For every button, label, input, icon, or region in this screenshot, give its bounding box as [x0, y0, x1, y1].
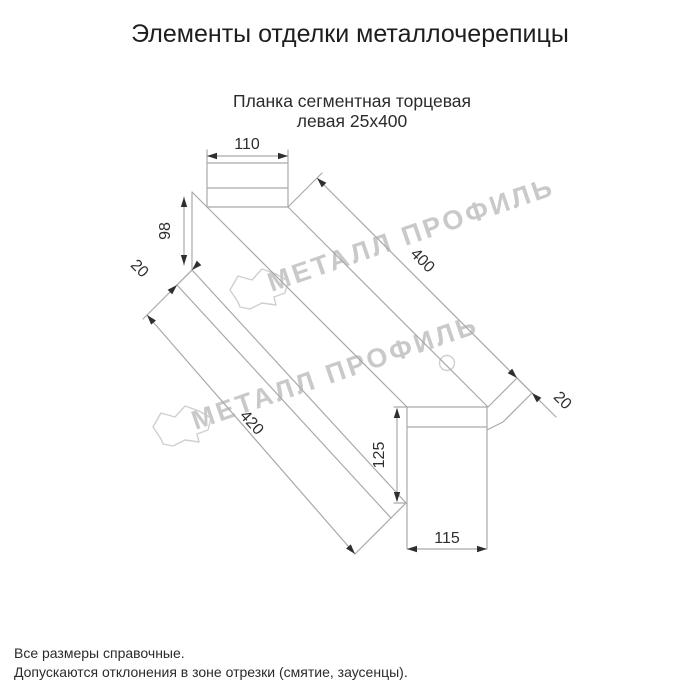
dimension-98: 98 — [157, 197, 187, 265]
part-subtitle-line1: Планка сегментная торцевая — [233, 91, 471, 111]
dim-115-label: 115 — [434, 530, 460, 547]
logo-ring-icon — [440, 356, 455, 371]
watermark-text: МЕТАЛЛ ПРОФИЛЬ — [188, 309, 483, 435]
page-title: Элементы отделки металлочерепицы — [131, 20, 569, 48]
watermark-text: МЕТАЛЛ ПРОФИЛЬ — [264, 171, 559, 297]
watermark-layer: МЕТАЛЛ ПРОФИЛЬ МЕТАЛЛ ПРОФИЛЬ — [153, 171, 558, 446]
dimension-20-right: 20 — [530, 389, 575, 414]
dimension-20-left: 20 — [127, 257, 201, 319]
dim-20-right-label: 20 — [550, 389, 575, 414]
drawing-page: МЕТАЛЛ ПРОФИЛЬ МЕТАЛЛ ПРОФИЛЬ Элементы о… — [0, 0, 700, 700]
dim-125-label: 125 — [371, 442, 388, 469]
dim-110-label: 110 — [234, 136, 260, 153]
dimension-110: 110 — [207, 136, 288, 162]
dimension-115: 115 — [407, 530, 487, 552]
footer-note-line2: Допускаются отклонения в зоне отрезки (с… — [14, 664, 408, 680]
part-subtitle-line2: левая 25х400 — [297, 111, 408, 131]
footer-note-line1: Все размеры справочные. — [14, 645, 185, 661]
dimension-125: 125 — [371, 407, 407, 503]
dim-20-left-label: 20 — [127, 257, 152, 282]
footer-notes: Все размеры справочные. Допускаются откл… — [14, 645, 408, 680]
dim-98-label: 98 — [157, 222, 174, 240]
technical-drawing: МЕТАЛЛ ПРОФИЛЬ МЕТАЛЛ ПРОФИЛЬ Элементы о… — [0, 0, 700, 700]
